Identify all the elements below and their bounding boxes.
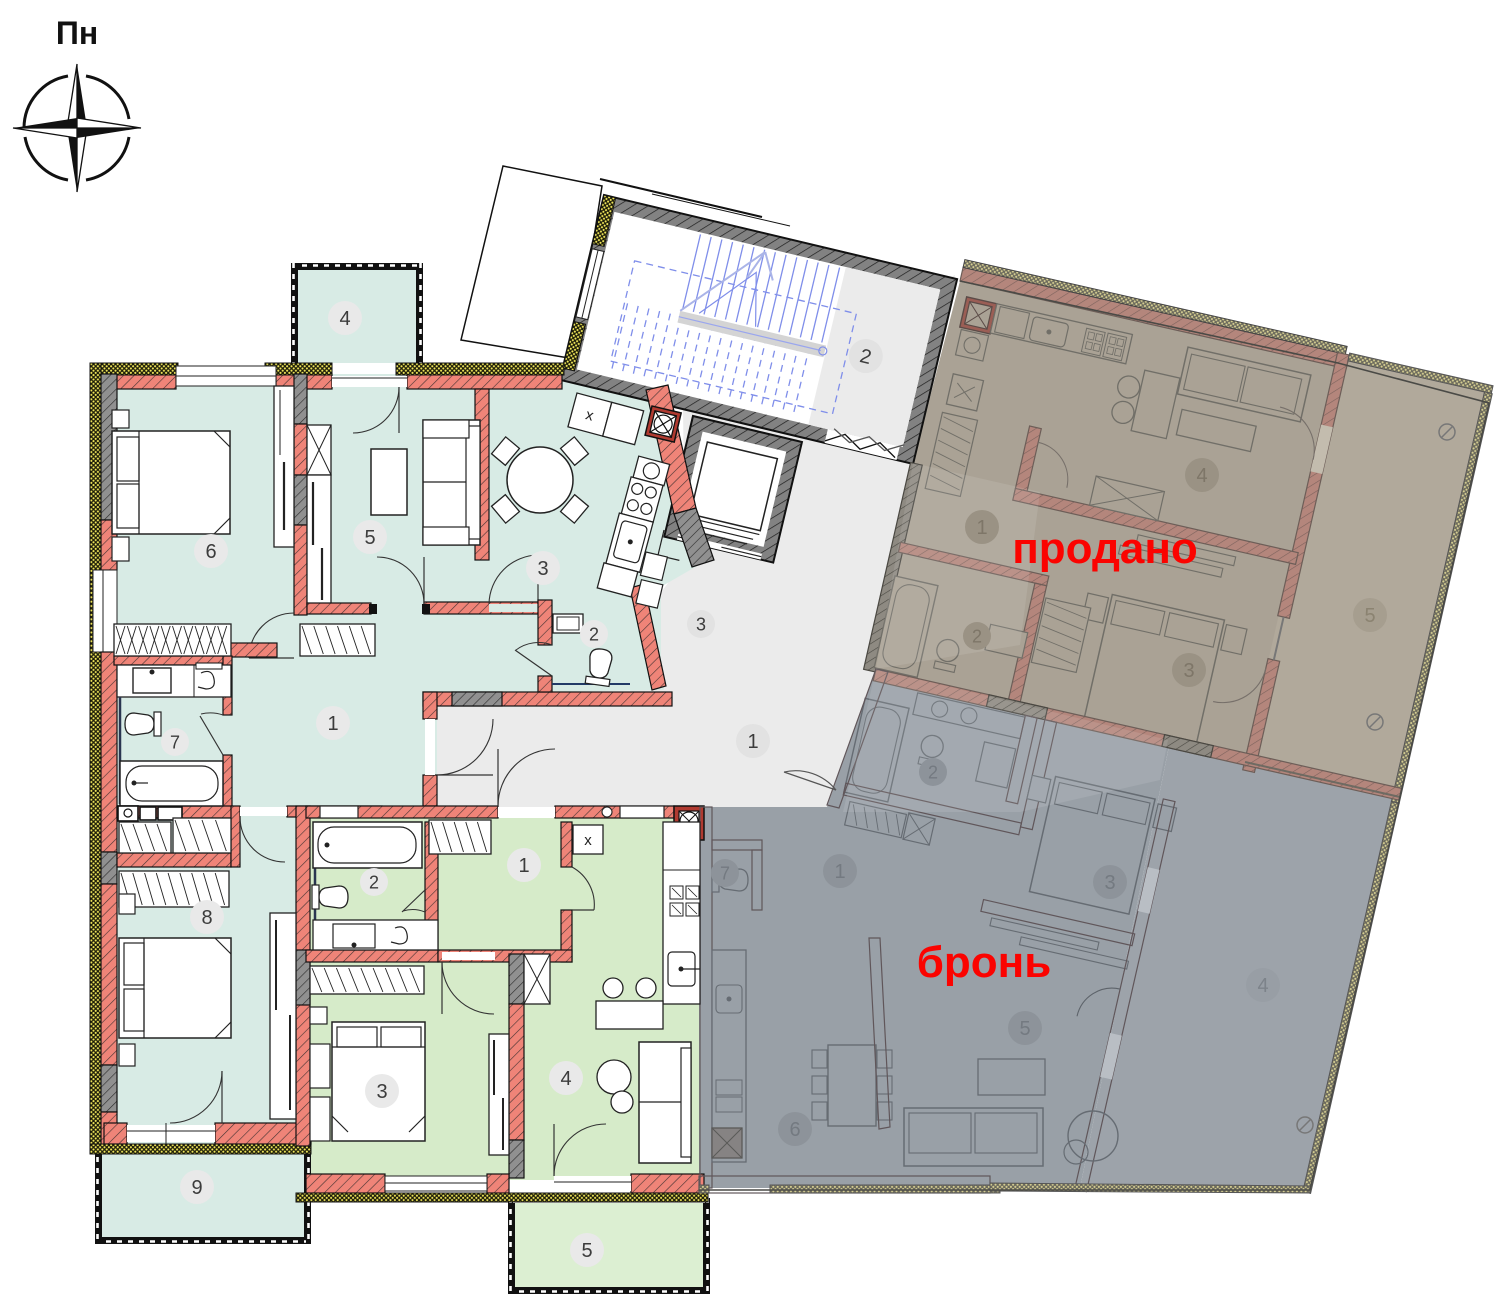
svg-text:3: 3 xyxy=(696,614,706,634)
svg-text:3: 3 xyxy=(1104,872,1115,894)
svg-text:6: 6 xyxy=(205,541,216,563)
svg-text:4: 4 xyxy=(1257,975,1268,997)
svg-text:1: 1 xyxy=(518,855,529,877)
svg-text:1: 1 xyxy=(976,517,987,539)
svg-text:9: 9 xyxy=(191,1177,202,1199)
svg-text:4: 4 xyxy=(339,308,350,330)
svg-text:3: 3 xyxy=(1183,660,1194,682)
svg-text:2: 2 xyxy=(928,762,938,782)
svg-text:2: 2 xyxy=(369,872,379,892)
svg-text:2: 2 xyxy=(589,624,599,644)
svg-text:2: 2 xyxy=(972,626,982,646)
svg-text:5: 5 xyxy=(1364,605,1375,627)
svg-text:8: 8 xyxy=(201,907,212,929)
svg-text:1: 1 xyxy=(327,713,338,735)
svg-text:1: 1 xyxy=(834,861,845,883)
svg-text:7: 7 xyxy=(170,732,180,752)
svg-text:x: x xyxy=(584,832,592,849)
svg-text:продано: продано xyxy=(1012,524,1198,573)
svg-text:бронь: бронь xyxy=(917,938,1052,987)
svg-text:4: 4 xyxy=(560,1068,571,1090)
svg-text:5: 5 xyxy=(1019,1018,1030,1040)
svg-text:1: 1 xyxy=(747,731,758,753)
svg-text:3: 3 xyxy=(376,1081,387,1103)
svg-text:5: 5 xyxy=(364,527,375,549)
svg-text:3: 3 xyxy=(537,558,548,580)
svg-text:6: 6 xyxy=(789,1119,800,1141)
svg-text:5: 5 xyxy=(581,1240,592,1262)
svg-text:4: 4 xyxy=(1196,465,1207,487)
svg-text:7: 7 xyxy=(720,863,730,883)
svg-text:Пн: Пн xyxy=(56,15,98,51)
